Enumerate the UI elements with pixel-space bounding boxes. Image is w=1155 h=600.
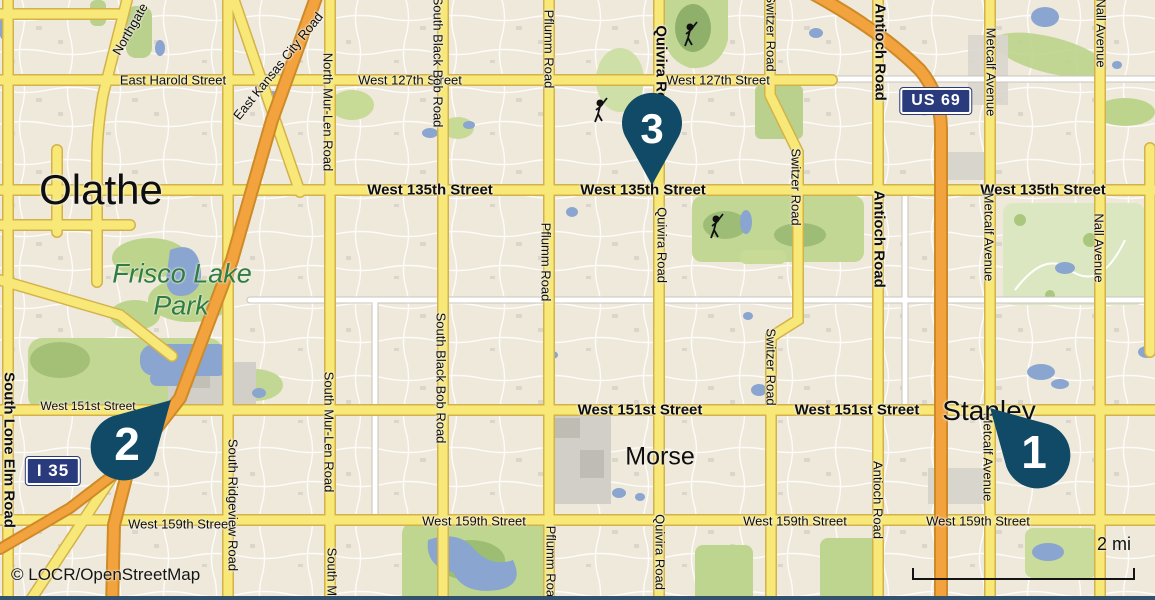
street-label-west-135th-2: West 135th Street bbox=[580, 183, 706, 198]
marker-number: 2 bbox=[114, 418, 140, 470]
street-label-north-mur-len: North Mur-Len Road bbox=[322, 53, 335, 172]
street-label-east-harold: East Harold Street bbox=[120, 74, 226, 87]
street-label-west-151st-small: West 151st Street bbox=[40, 400, 135, 412]
street-label-west-151st-1: West 151st Street bbox=[578, 403, 703, 418]
street-label-west-159th-1: West 159th Street bbox=[128, 518, 232, 531]
place-label-olathe: Olathe bbox=[39, 169, 163, 211]
map-bottom-edge bbox=[0, 596, 1155, 600]
map-attribution: © LOCR/OpenStreetMap bbox=[11, 565, 200, 585]
scale-bar bbox=[912, 568, 1135, 580]
street-label-quivira-2: Quivira Road bbox=[656, 207, 669, 283]
place-label-frisco-lake-line2: Park bbox=[153, 293, 209, 320]
street-label-south-ridgeview: South Ridgeview Road bbox=[227, 439, 240, 571]
street-label-pflumm-3: Pflumm Road bbox=[545, 526, 558, 600]
street-label-south-black-bob-2: South Black Bob Road bbox=[435, 313, 448, 444]
scale-label: 2 mi bbox=[1097, 534, 1131, 555]
street-label-west-127th-1: West 127th Street bbox=[358, 74, 462, 87]
street-label-quivira-3: Quivira Road bbox=[654, 514, 667, 590]
street-label-antioch-3: Antioch Road bbox=[872, 461, 885, 539]
street-label-south-lone-elm: South Lone Elm Road bbox=[2, 372, 17, 528]
street-label-south-black-bob-1: South Black Bob Road bbox=[432, 0, 445, 127]
street-label-west-159th-4: West 159th Street bbox=[926, 515, 1030, 528]
street-label-west-135th-3: West 135th Street bbox=[980, 183, 1106, 198]
street-label-switzer-3: Switzer Road bbox=[765, 328, 778, 405]
street-label-west-159th-2: West 159th Street bbox=[422, 515, 526, 528]
street-label-nall-1: Nall Avenue bbox=[1095, 0, 1108, 68]
street-label-west-135th-1: West 135th Street bbox=[367, 183, 493, 198]
street-label-metcalf-1: Metcalf Avenue bbox=[985, 28, 998, 117]
street-label-south-mur-len-1: South Mur-Len Road bbox=[323, 372, 336, 493]
highway-shield-i35: I 35 bbox=[26, 457, 80, 485]
marker-number: 3 bbox=[640, 105, 663, 152]
street-label-metcalf-2: Metcalf Avenue bbox=[983, 193, 996, 282]
street-label-west-151st-2: West 151st Street bbox=[795, 403, 920, 418]
place-label-morse: Morse bbox=[625, 445, 694, 470]
street-label-pflumm-2: Pflumm Road bbox=[540, 223, 553, 302]
highway-shield-us69: US 69 bbox=[900, 88, 971, 114]
street-label-south-mur-len-2: South Mur-Len Road bbox=[326, 548, 339, 600]
street-label-antioch-1: Antioch Road bbox=[873, 3, 888, 101]
street-label-west-159th-3: West 159th Street bbox=[743, 515, 847, 528]
street-label-switzer-1: Switzer Road bbox=[765, 0, 778, 72]
map-canvas[interactable]: East Harold Street West 127th Street Wes… bbox=[0, 0, 1155, 600]
street-label-switzer-2: Switzer Road bbox=[790, 148, 803, 225]
place-label-frisco-lake-line1: Frisco Lake bbox=[112, 261, 252, 288]
street-label-antioch-2: Antioch Road bbox=[872, 190, 887, 288]
street-label-nall-2: Nall Avenue bbox=[1093, 213, 1106, 282]
street-label-west-127th-2: West 127th Street bbox=[666, 74, 770, 87]
marker-number: 1 bbox=[1021, 426, 1047, 478]
street-label-pflumm-1: Pflumm Road bbox=[543, 10, 556, 89]
